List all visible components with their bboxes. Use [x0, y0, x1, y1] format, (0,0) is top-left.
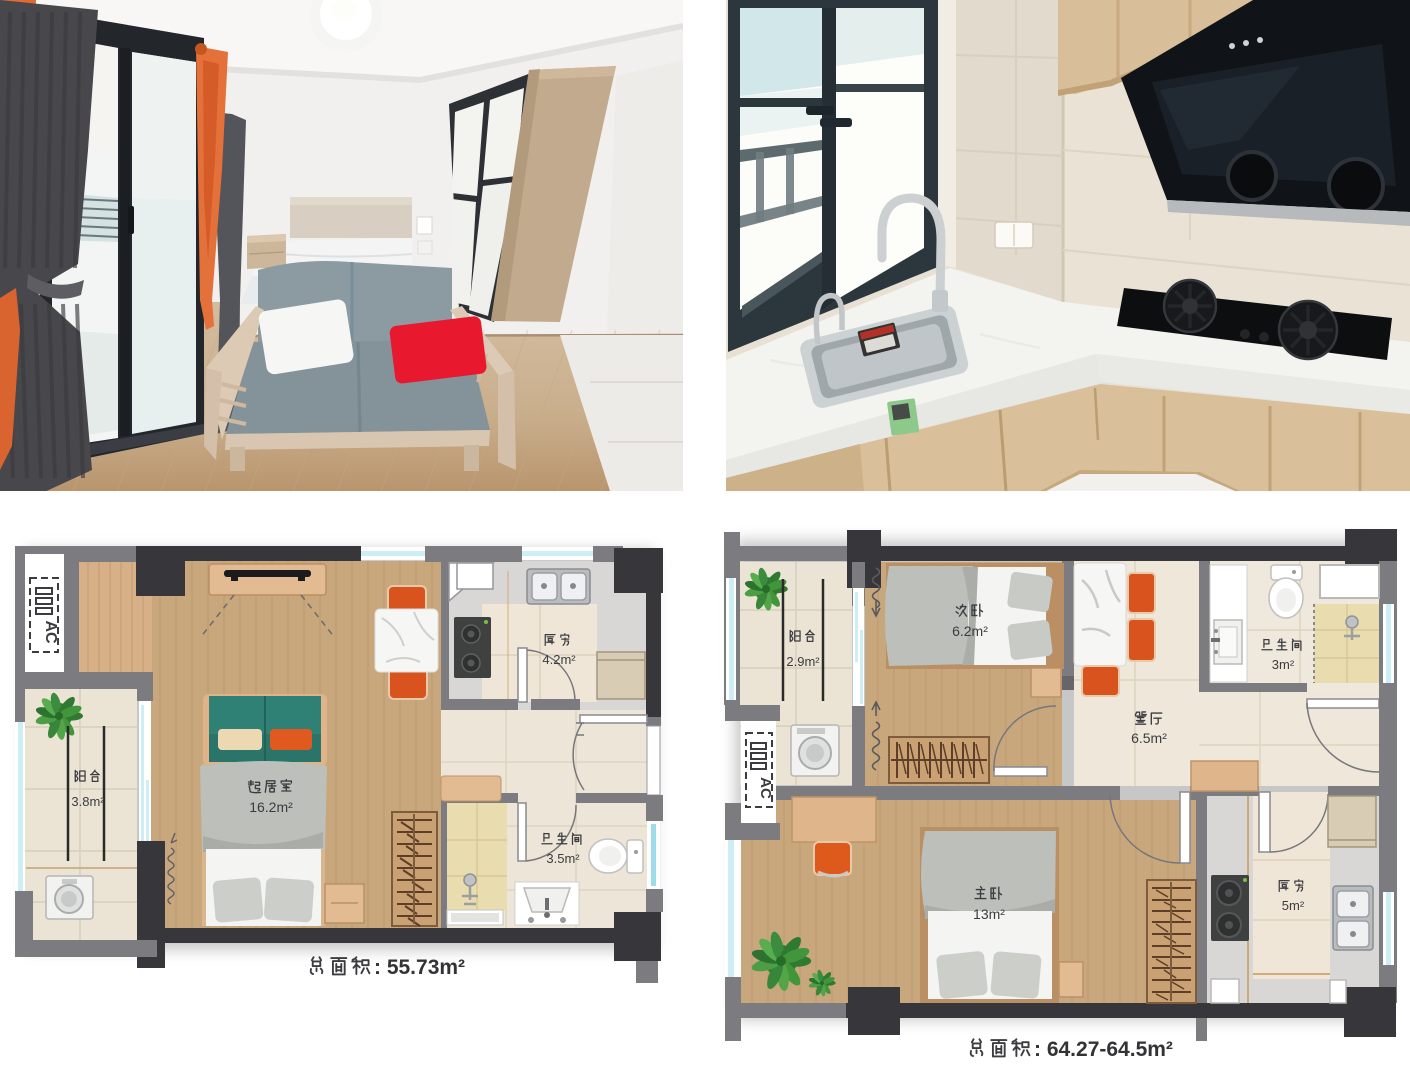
svg-text:4.2m²: 4.2m² — [542, 652, 576, 667]
svg-text:2.9m²: 2.9m² — [786, 654, 820, 669]
svg-text:3m²: 3m² — [1272, 657, 1295, 672]
svg-text:6.5m²: 6.5m² — [1131, 730, 1167, 746]
svg-text:13m²: 13m² — [973, 906, 1005, 922]
svg-text:: 55.73m²: : 55.73m² — [374, 956, 465, 979]
svg-text:3.5m²: 3.5m² — [546, 851, 580, 866]
svg-text:5m²: 5m² — [1282, 898, 1305, 913]
svg-text:6.2m²: 6.2m² — [952, 623, 988, 639]
svg-text:3.8m²: 3.8m² — [71, 794, 105, 809]
svg-text:: 64.27-64.5m²: : 64.27-64.5m² — [1034, 1038, 1173, 1061]
svg-text:AC: AC — [757, 777, 774, 799]
svg-text:16.2m²: 16.2m² — [249, 799, 293, 815]
svg-text:AC: AC — [42, 620, 59, 644]
